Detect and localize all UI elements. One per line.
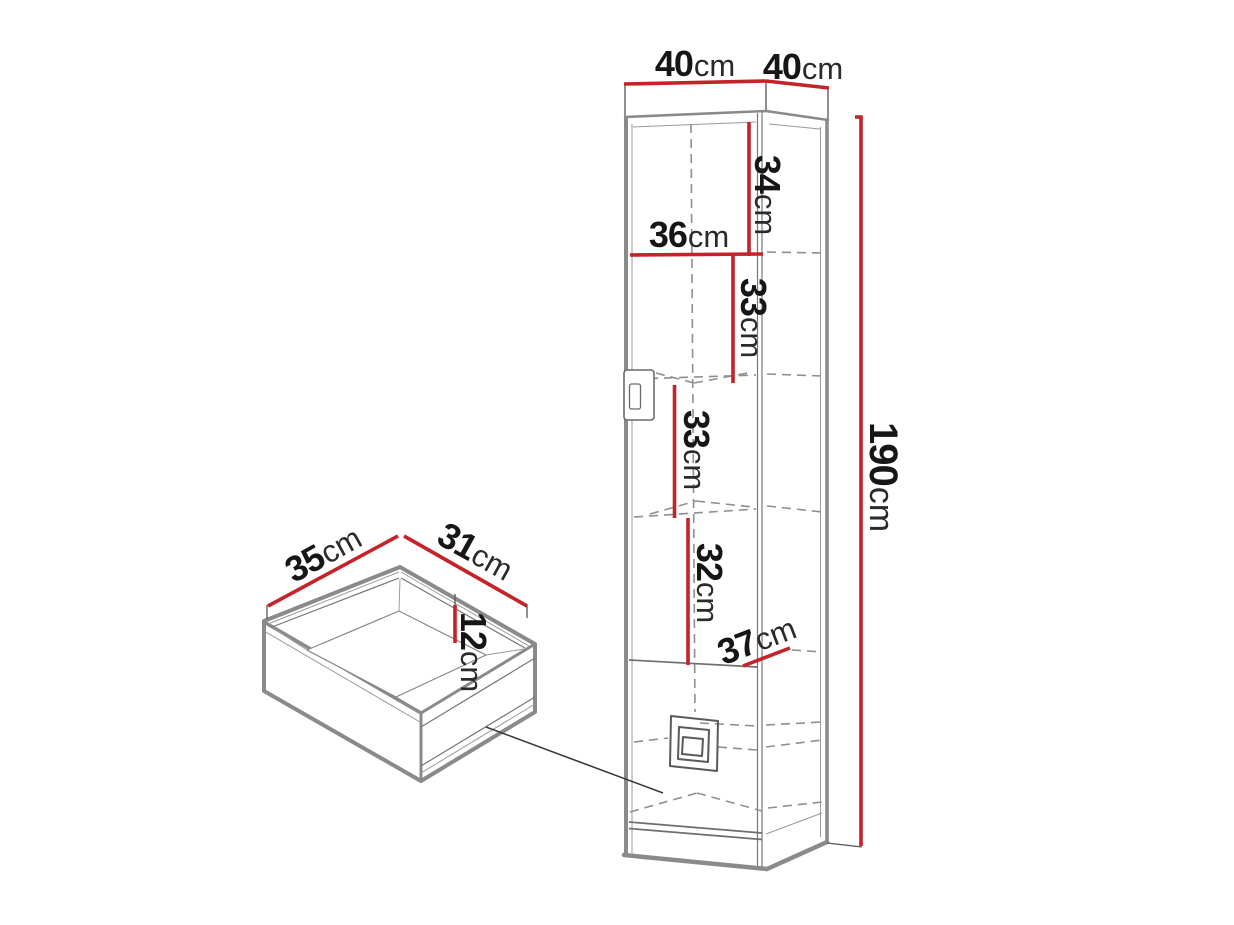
dim-34-label: 34cm <box>747 155 788 235</box>
furniture-dimension-diagram: 40cm 40cm 34cm 36cm 33cm 33cm 32cm 37cm … <box>0 0 1234 925</box>
dim-top-width-left-label: 40cm <box>655 43 735 84</box>
drawer-rim-outer-left <box>268 572 399 624</box>
dim-35-drawer-label: 35cm <box>278 516 368 591</box>
dim-36-label: 36cm <box>649 214 729 255</box>
drawer-wall-corner-back <box>399 579 400 611</box>
door-handle <box>624 370 654 420</box>
cabinet-drawing <box>624 81 828 869</box>
drawer-side-rail-line-2 <box>421 697 535 766</box>
diagram-canvas: 40cm 40cm 34cm 36cm 33cm 33cm 32cm 37cm … <box>0 0 1234 925</box>
dim-32-label: 32cm <box>689 543 730 623</box>
dim-33-lower-label: 33cm <box>676 410 717 490</box>
dim-190-label: 190cm <box>861 422 905 532</box>
dim-line-height-190 <box>855 117 861 846</box>
dim-33-upper-label: 33cm <box>733 278 774 358</box>
drawer-drawing <box>264 567 535 781</box>
dim-top-width-right-label: 40cm <box>763 46 843 87</box>
door-handle-grip <box>630 384 641 409</box>
dim-12-drawer-label: 12cm <box>453 612 494 692</box>
dim-connector-190-bottom <box>827 843 862 847</box>
